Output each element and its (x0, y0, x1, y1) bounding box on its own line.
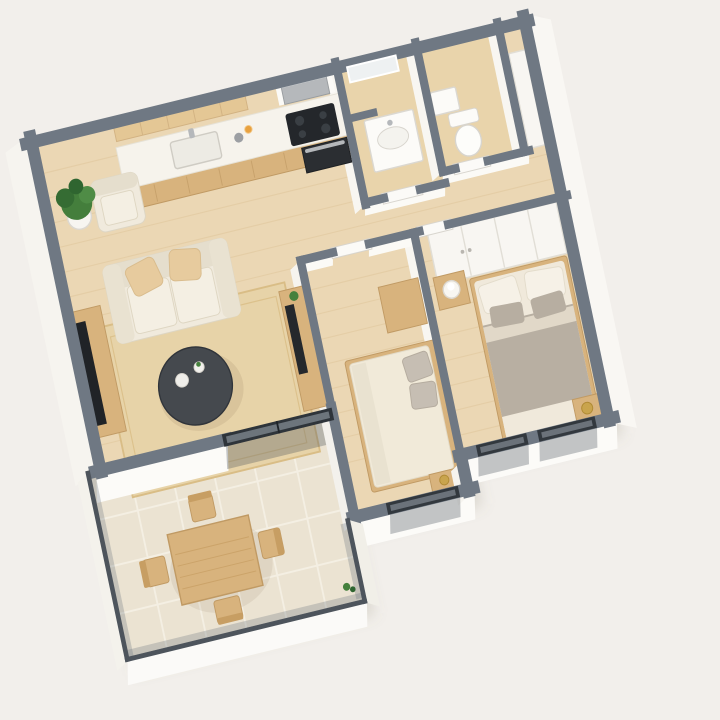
bed1-pillow (409, 381, 438, 410)
bathroom-south-wall (420, 183, 445, 189)
wc-hand-basin (430, 87, 460, 116)
bathroom-south-wall (365, 198, 384, 203)
wc-south-wall (443, 169, 456, 172)
sofa-pillow (169, 248, 202, 281)
floorplan-render: Isometric 3D floor plan render of an apa… (0, 0, 720, 720)
floorplan-canvas (0, 0, 720, 720)
